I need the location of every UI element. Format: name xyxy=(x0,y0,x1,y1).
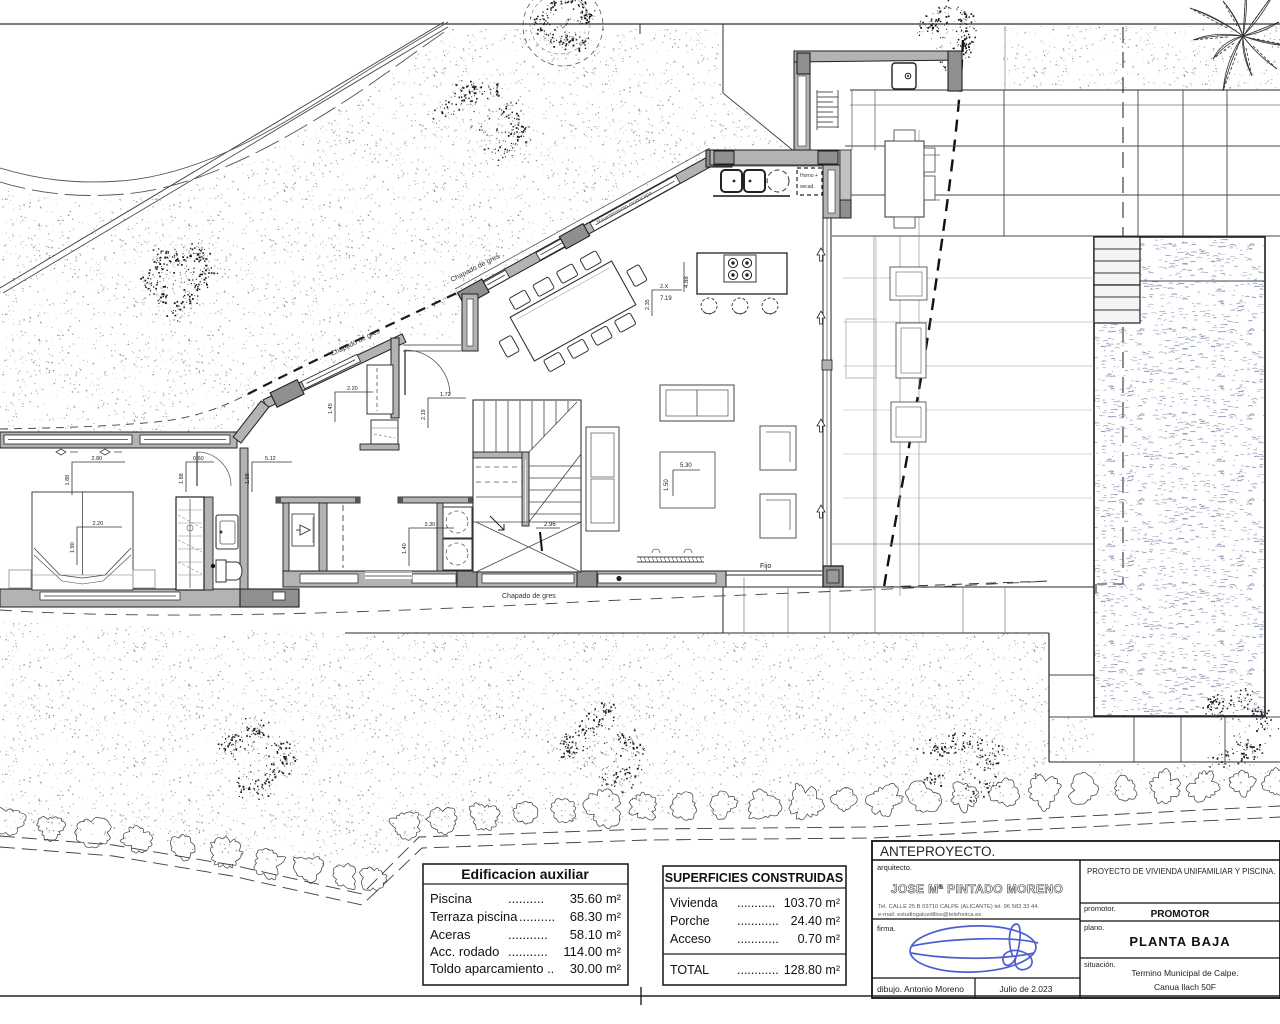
svg-text:24.40 m²: 24.40 m² xyxy=(791,914,840,928)
svg-text:secad.: secad. xyxy=(800,184,815,190)
svg-text:2.20: 2.20 xyxy=(347,386,358,392)
svg-text:...........: ........... xyxy=(508,927,548,942)
svg-text:Aceras: Aceras xyxy=(430,927,471,942)
svg-text:1.88: 1.88 xyxy=(65,475,71,486)
svg-text:Edificacion auxiliar: Edificacion auxiliar xyxy=(461,866,589,882)
svg-text:1.88: 1.88 xyxy=(245,473,251,484)
svg-text:............: ............ xyxy=(737,914,779,928)
svg-text:e-mail: estudiogalcedillos@tel: e-mail: estudiogalcedillos@telefonica.es xyxy=(878,912,981,918)
svg-text:114.00 m²: 114.00 m² xyxy=(563,944,621,959)
svg-text:Acc. rodado: Acc. rodado xyxy=(430,944,499,959)
svg-text:5.30: 5.30 xyxy=(680,463,692,469)
svg-text:68.30 m²: 68.30 m² xyxy=(570,909,622,924)
svg-text:ANTEPROYECTO.: ANTEPROYECTO. xyxy=(880,844,995,859)
svg-text:1.88: 1.88 xyxy=(179,473,185,484)
svg-text:Acceso: Acceso xyxy=(670,932,711,946)
svg-text:PROYECTO DE VIVIENDA UNIFAM: PROYECTO DE VIVIENDA UNIFAMILIAR Y PISCI… xyxy=(1087,867,1275,876)
svg-text:PLANTA BAJA: PLANTA BAJA xyxy=(1129,934,1230,949)
svg-text:Piscina: Piscina xyxy=(430,891,473,906)
svg-text:Fijo: Fijo xyxy=(760,563,771,570)
svg-text:Canua llach 50F: Canua llach 50F xyxy=(1154,982,1216,992)
svg-text:2.80: 2.80 xyxy=(92,456,103,462)
svg-text:128.80 m²: 128.80 m² xyxy=(784,963,840,977)
svg-text:2.35: 2.35 xyxy=(645,299,651,310)
svg-text:Tel. CALLE 25 B 03710 CALPE (A: Tel. CALLE 25 B 03710 CALPE (ALICANTE) t… xyxy=(878,904,1040,910)
svg-text:...........: ........... xyxy=(508,944,548,959)
svg-text:Terraza piscina: Terraza piscina xyxy=(430,909,518,924)
svg-text:4.88: 4.88 xyxy=(684,276,690,288)
svg-text:Vivienda: Vivienda xyxy=(670,896,718,910)
svg-text:1.50: 1.50 xyxy=(664,479,670,491)
svg-text:promotor.: promotor. xyxy=(1084,904,1116,913)
svg-text:firma.: firma. xyxy=(877,924,896,933)
svg-text:103.70 m²: 103.70 m² xyxy=(784,896,840,910)
svg-text:2.X: 2.X xyxy=(660,284,669,290)
svg-text:plano.: plano. xyxy=(1084,923,1104,932)
svg-text:2.96: 2.96 xyxy=(544,522,556,528)
svg-text:1.72: 1.72 xyxy=(440,392,451,398)
svg-text:Julio de 2.023: Julio de 2.023 xyxy=(1000,984,1053,994)
svg-text:PROMOTOR: PROMOTOR xyxy=(1151,909,1210,920)
svg-text:2.19: 2.19 xyxy=(421,409,427,420)
svg-text:..........: .......... xyxy=(508,891,544,906)
svg-text:..........: .......... xyxy=(519,909,555,924)
svg-text:7.19: 7.19 xyxy=(660,296,672,302)
svg-text:58.10 m²: 58.10 m² xyxy=(570,927,622,942)
svg-text:Chapado de gres: Chapado de gres xyxy=(502,593,556,600)
svg-text:30.00 m²: 30.00 m² xyxy=(570,961,622,976)
svg-text:arquitecto.: arquitecto. xyxy=(877,863,912,872)
svg-text:1.45: 1.45 xyxy=(328,403,334,414)
svg-text:...........: ........... xyxy=(737,896,775,910)
svg-text:SUPERFICIES CONSTRUIDAS: SUPERFICIES CONSTRUIDAS xyxy=(665,871,844,885)
svg-text:dibujo. Antonio Moreno: dibujo. Antonio Moreno xyxy=(877,984,964,994)
svg-text:35.60 m²: 35.60 m² xyxy=(570,891,622,906)
svg-text:Toldo aparcamiento ..: Toldo aparcamiento .. xyxy=(430,961,554,976)
svg-text:5.12: 5.12 xyxy=(265,456,276,462)
svg-text:Termino Municipal de Calpe.: Termino Municipal de Calpe. xyxy=(1131,968,1238,978)
svg-text:situación.: situación. xyxy=(1084,960,1116,969)
svg-text:JOSE Mª PINTADO MORENO: JOSE Mª PINTADO MORENO xyxy=(891,882,1063,896)
svg-text:1.90: 1.90 xyxy=(70,542,76,553)
svg-text:Horno +: Horno + xyxy=(800,173,818,179)
svg-text:1.40: 1.40 xyxy=(402,543,408,554)
svg-text:2.20: 2.20 xyxy=(93,521,104,527)
svg-text:3.30: 3.30 xyxy=(425,522,436,528)
svg-text:Porche: Porche xyxy=(670,914,710,928)
svg-text:0.60: 0.60 xyxy=(193,456,204,462)
svg-text:0.70 m²: 0.70 m² xyxy=(798,932,840,946)
svg-text:TOTAL: TOTAL xyxy=(670,963,709,977)
svg-text:............: ............ xyxy=(737,932,779,946)
svg-text:............: ............ xyxy=(737,963,779,977)
